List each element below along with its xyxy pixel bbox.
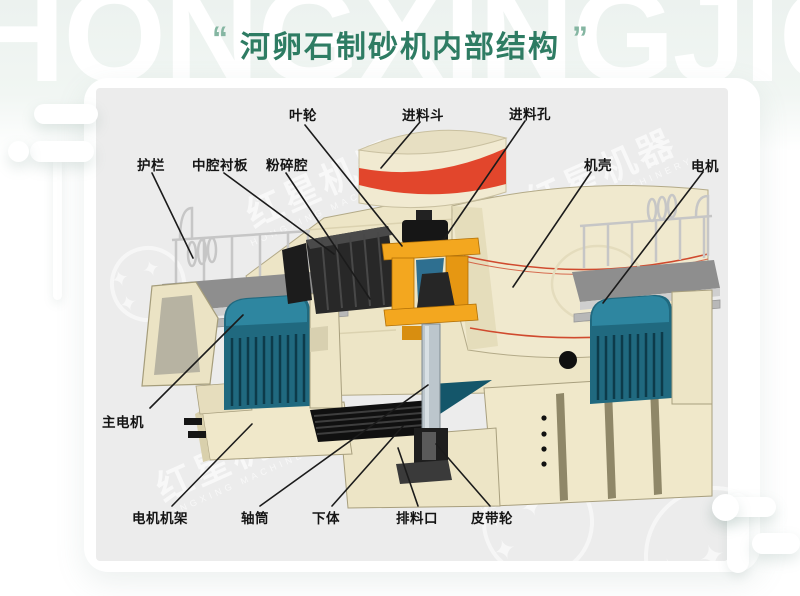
small-pulley xyxy=(559,351,577,369)
left-motor xyxy=(142,282,342,410)
leader-line xyxy=(224,173,334,254)
page-title: 河卵石制砂机内部结构 xyxy=(240,22,560,66)
part-label-feed-hopper: 进料斗 xyxy=(402,104,444,124)
infographic-stage: HONGXINGJIQI “河卵石制砂机内部结构” 红星机器 HONGXING … xyxy=(0,0,800,596)
close-quote-icon: ” xyxy=(572,20,588,57)
part-label-discharge-port: 排料口 xyxy=(396,507,438,527)
part-label-main-motor: 主电机 xyxy=(102,411,144,431)
part-label-casing: 机壳 xyxy=(584,154,612,174)
part-label-feed-hole: 进料孔 xyxy=(509,103,551,123)
part-label-crushing-chamber: 粉碎腔 xyxy=(266,154,308,174)
machine-illustration xyxy=(96,88,728,561)
decor-circle xyxy=(712,494,739,521)
part-label-impeller: 叶轮 xyxy=(289,104,317,124)
part-label-cavity-liner: 中腔衬板 xyxy=(192,154,248,174)
decor-pill xyxy=(30,141,94,162)
part-label-motor: 电机 xyxy=(691,155,719,175)
open-quote-icon: “ xyxy=(212,20,228,57)
decor-pill xyxy=(752,533,800,554)
discharge-port-shape xyxy=(396,460,452,484)
decor-bar xyxy=(53,158,62,300)
part-label-guardrail: 护栏 xyxy=(137,154,165,174)
part-label-lower-body: 下体 xyxy=(312,507,340,527)
page-title-row: “河卵石制砂机内部结构” xyxy=(0,20,800,66)
part-label-shaft-tube: 轴筒 xyxy=(241,507,269,527)
leader-line xyxy=(152,173,193,258)
decor-circle xyxy=(8,141,29,162)
diagram-panel: 红星机器 HONGXING MACHINERY 红星机器 HONGXING MA… xyxy=(96,88,728,561)
feed-hopper-cylinder xyxy=(359,130,506,207)
part-label-belt-pulley: 皮带轮 xyxy=(471,507,513,527)
decor-pill xyxy=(34,104,98,124)
part-label-motor-frame: 电机机架 xyxy=(132,507,188,527)
